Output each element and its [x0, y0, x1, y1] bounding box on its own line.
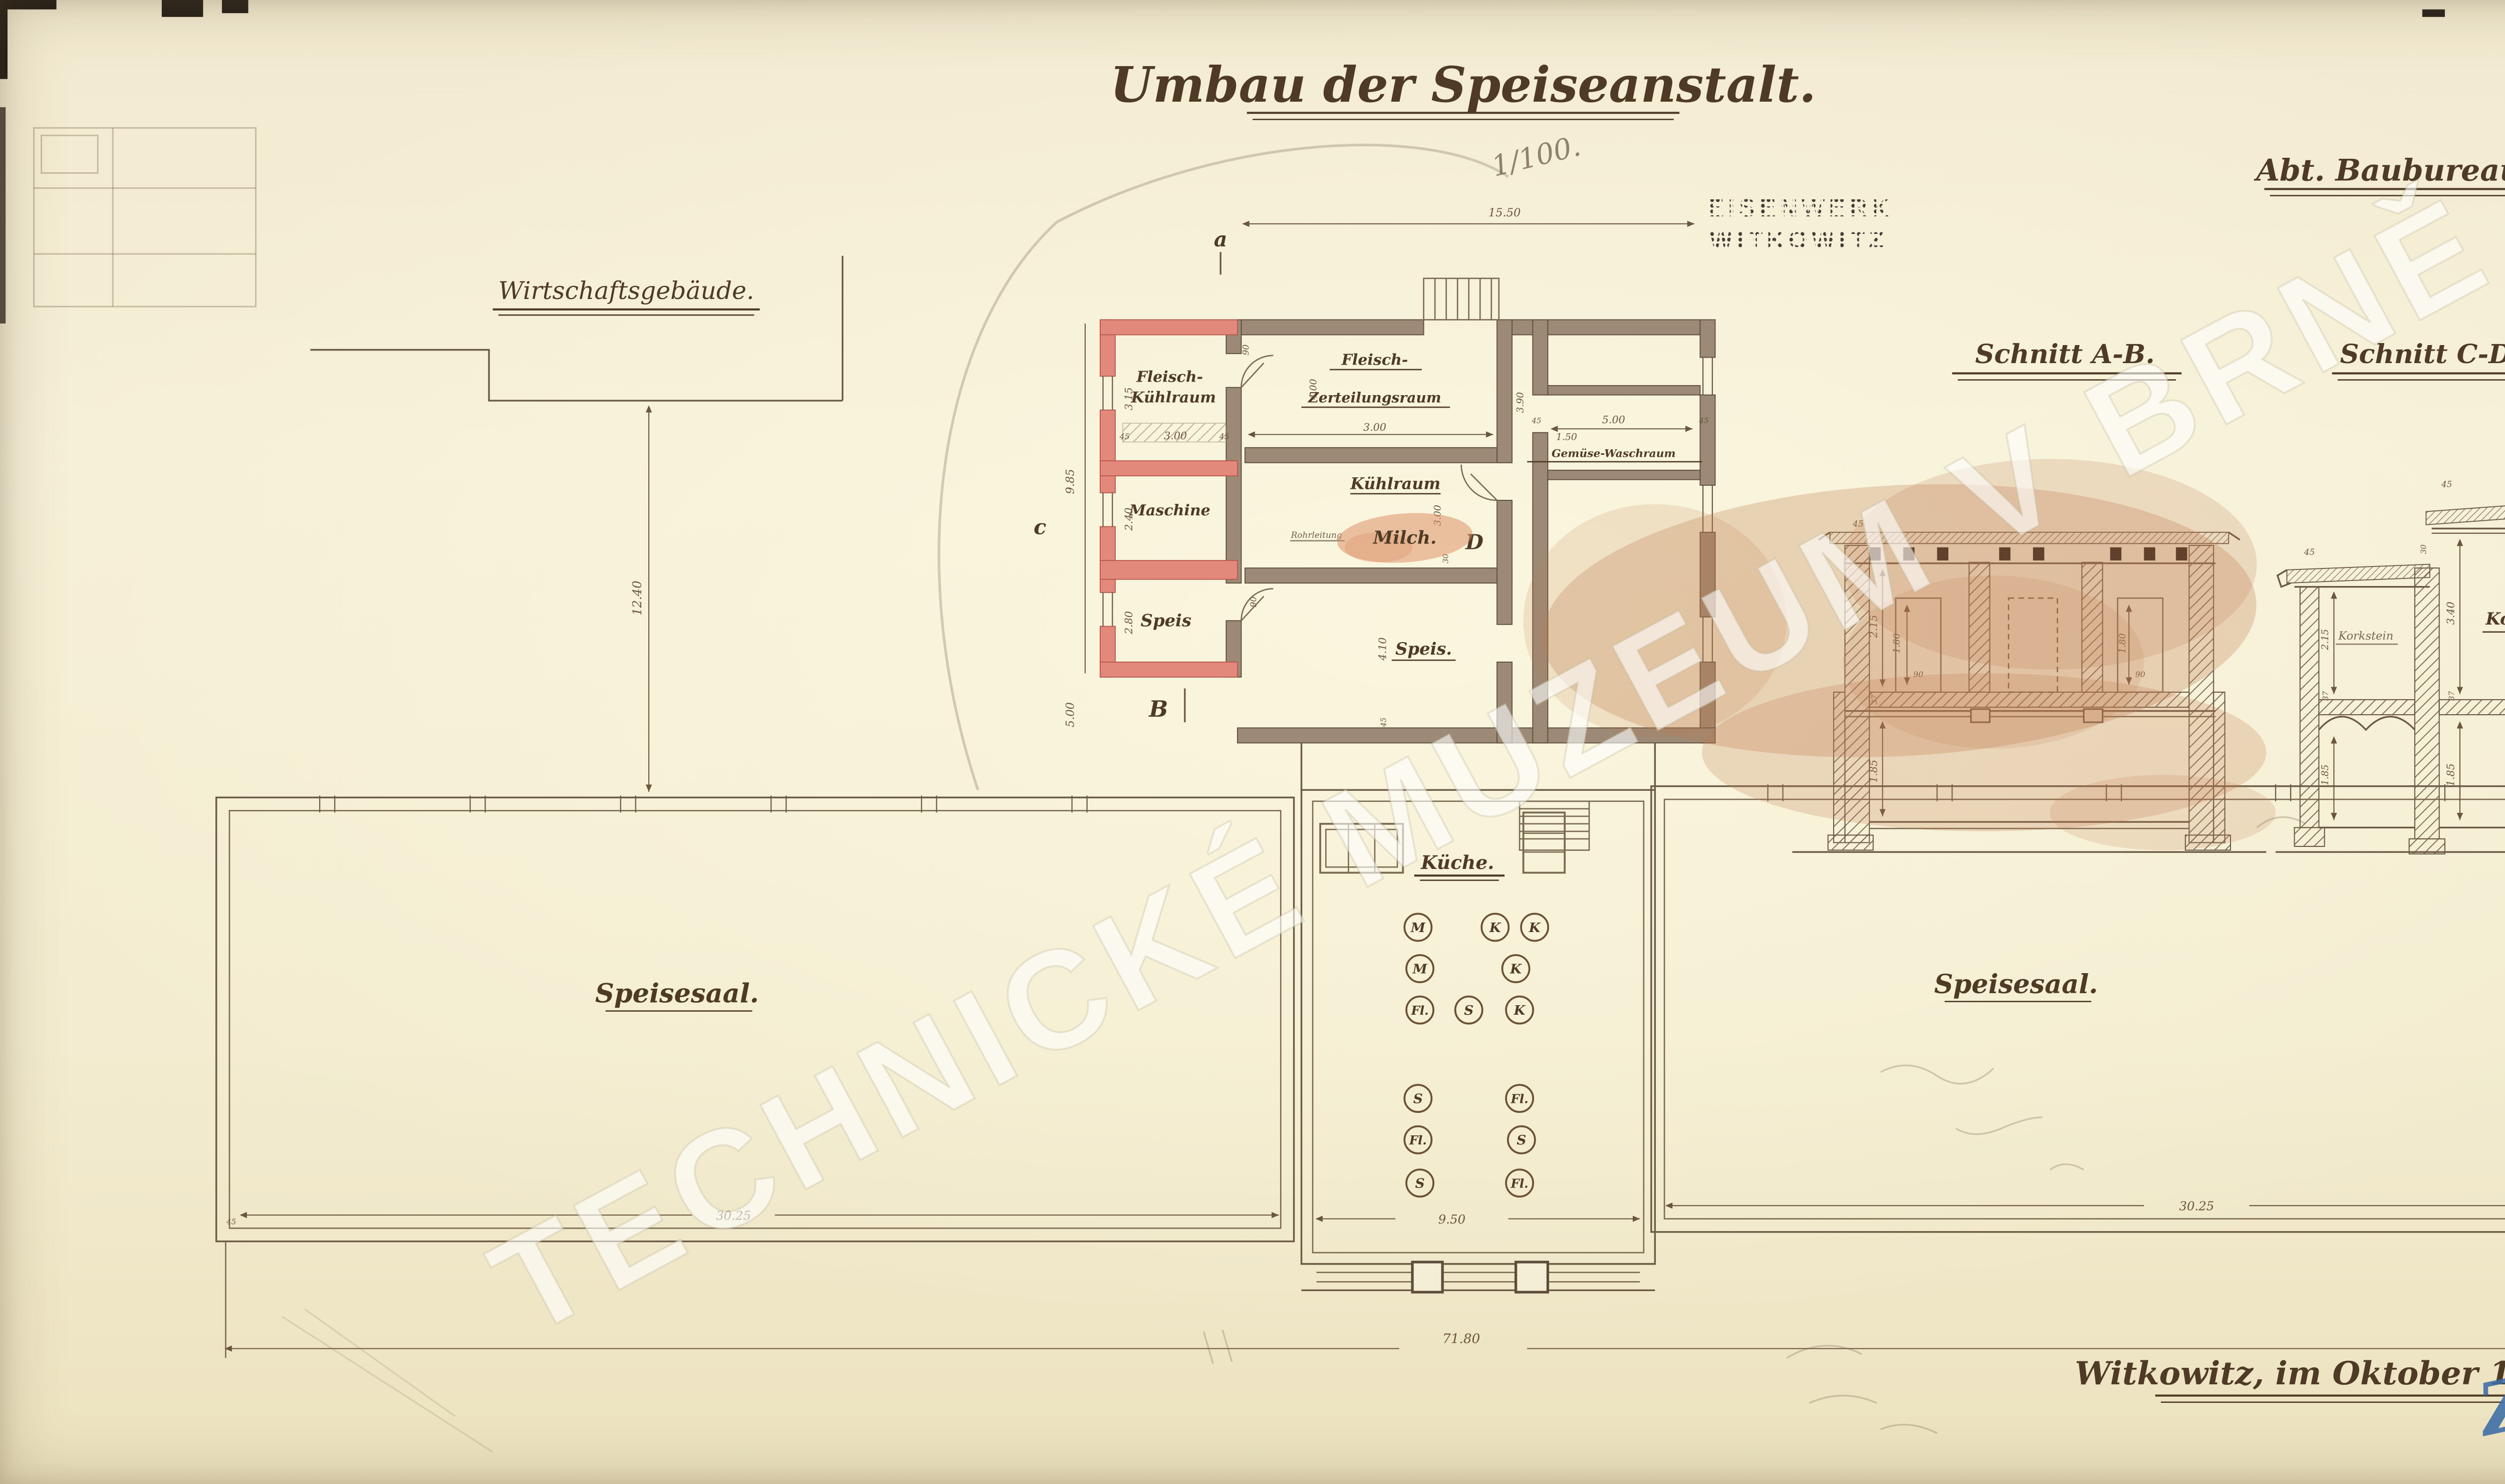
- svg-text:5.00: 5.00: [1064, 702, 1077, 727]
- svg-text:S: S: [1413, 1091, 1423, 1107]
- section-cd: Schnitt C-D. Korkstein Korkstein.: [2276, 339, 2505, 854]
- total-dim: 71.80: [1442, 1331, 1480, 1346]
- department-label: Abt. Baubureau.: [2253, 153, 2505, 196]
- section-marker-c: c: [1034, 515, 1046, 539]
- room-cutting-line2: Zerteilungsraum: [1308, 390, 1441, 406]
- stamp-line-2: WITKOWITZ: [1709, 227, 1888, 254]
- kitchen-width-dim: 9.50: [1438, 1212, 1465, 1227]
- pencil-sketch-corner: [34, 128, 256, 307]
- room-meat-cooling-line2: Kühlraum: [1131, 389, 1216, 407]
- department-text: Abt. Baubureau.: [2253, 153, 2505, 188]
- svg-text:45: 45: [1379, 718, 1388, 728]
- svg-text:Fl.: Fl.: [1411, 1003, 1429, 1018]
- svg-text:S: S: [1464, 1003, 1473, 1018]
- svg-text:30: 30: [2419, 544, 2428, 554]
- svg-text:45: 45: [226, 1218, 236, 1227]
- kettle-letters: M K K M K Fl. S K S Fl. Fl. S S Fl.: [1409, 920, 1541, 1192]
- gap-dimension: 12.40: [630, 580, 644, 616]
- svg-text:S: S: [1517, 1132, 1526, 1148]
- svg-text:3.40: 3.40: [2445, 602, 2457, 625]
- milk-label: Milch.: [1372, 527, 1437, 548]
- svg-text:M: M: [1412, 961, 1428, 977]
- section-marker-a: a: [1214, 227, 1227, 251]
- svg-text:45: 45: [1698, 416, 1708, 425]
- registry-number: ZNr 5743/8 2: [2469, 1276, 2505, 1482]
- room-pantry-center: Speis.: [1395, 639, 1452, 659]
- korkstein-small: Korkstein: [2338, 630, 2393, 643]
- pipe-annotation: Rohrleitung: [1291, 530, 1342, 540]
- korkstein-label: Korkstein.: [2485, 609, 2505, 629]
- scan-edge-artifacts: [0, 0, 2505, 324]
- svg-text:3.00: 3.00: [1363, 421, 1386, 433]
- room-meat-cooling-line1: Fleisch-: [1136, 368, 1203, 386]
- page-title: Umbau der Speiseanstalt.: [1110, 56, 1816, 114]
- svg-text:K: K: [1489, 920, 1501, 936]
- svg-text:45: 45: [2304, 547, 2315, 557]
- svg-text:37: 37: [2447, 691, 2456, 701]
- blueprint-canvas: Umbau der Speiseanstalt. 1/100. Abt. Bau…: [0, 0, 2505, 1484]
- svg-text:90: 90: [1241, 345, 1251, 356]
- svg-text:4.10: 4.10: [1377, 638, 1389, 661]
- svg-text:45: 45: [1219, 432, 1229, 441]
- svg-text:1.85: 1.85: [2320, 764, 2331, 785]
- stamp-line-1: EISENWERK: [1707, 195, 1893, 222]
- svg-text:K: K: [1514, 1003, 1526, 1018]
- svg-text:S: S: [1415, 1176, 1425, 1192]
- svg-text:4.00: 4.00: [1309, 379, 1319, 400]
- room-machine: Maschine: [1129, 502, 1210, 519]
- svg-text:15.50: 15.50: [1488, 206, 1521, 219]
- svg-text:1.85: 1.85: [2445, 763, 2457, 786]
- hall-right-dim: 30.25: [2179, 1199, 2214, 1214]
- hall-left-label: Speisesaal.: [595, 979, 759, 1009]
- site-building-label: Wirtschaftsgebäude.: [498, 276, 755, 305]
- perforation-stamp: EISENWERK WITKOWITZ: [1707, 195, 1893, 254]
- svg-text:45: 45: [1531, 416, 1541, 425]
- svg-text:3.00: 3.00: [1164, 430, 1187, 442]
- svg-text:1.50: 1.50: [1556, 432, 1577, 443]
- signature-text: Witkowitz, im Oktober 1910.: [2075, 1355, 2505, 1392]
- svg-text:5.00: 5.00: [1602, 414, 1625, 426]
- scanned-drawing-sheet: Umbau der Speiseanstalt. 1/100. Abt. Bau…: [0, 0, 2505, 1484]
- room-veg-wash: Gemüse-Waschraum: [1552, 448, 1676, 460]
- svg-text:3.15: 3.15: [1123, 387, 1135, 410]
- svg-text:M: M: [1410, 920, 1426, 936]
- svg-text:Fl.: Fl.: [1511, 1176, 1529, 1191]
- svg-text:Fl.: Fl.: [1409, 1133, 1427, 1147]
- svg-text:37: 37: [2321, 691, 2330, 701]
- hall-right-label: Speisesaal.: [1934, 969, 2098, 1000]
- room-pantry-left: Speis: [1141, 611, 1191, 631]
- stair-annex: [1424, 278, 1499, 320]
- svg-text:K: K: [1529, 920, 1541, 936]
- svg-text:45: 45: [1119, 432, 1130, 441]
- room-cooling: Kühlraum: [1350, 474, 1440, 493]
- room-cutting-line1: Fleisch-: [1341, 352, 1408, 369]
- svg-text:2.15: 2.15: [2320, 629, 2331, 651]
- svg-text:90: 90: [1248, 597, 1259, 608]
- svg-text:2.80: 2.80: [1123, 611, 1135, 635]
- site-plan: Wirtschaftsgebäude. 12.40: [310, 145, 1508, 792]
- scale-note: 1/100.: [1488, 130, 1584, 183]
- kitchen-kettles: [1404, 914, 1548, 1197]
- svg-text:9.85: 9.85: [1064, 469, 1077, 494]
- svg-text:K: K: [1510, 961, 1522, 977]
- section-marker-b: B: [1148, 696, 1168, 722]
- signature-block: Witkowitz, im Oktober 1910.: [2075, 1355, 2505, 1402]
- svg-text:45: 45: [2441, 479, 2452, 489]
- svg-text:Fl.: Fl.: [1511, 1092, 1529, 1106]
- svg-text:3.90: 3.90: [1516, 392, 1526, 413]
- svg-text:2.40: 2.40: [1123, 507, 1135, 531]
